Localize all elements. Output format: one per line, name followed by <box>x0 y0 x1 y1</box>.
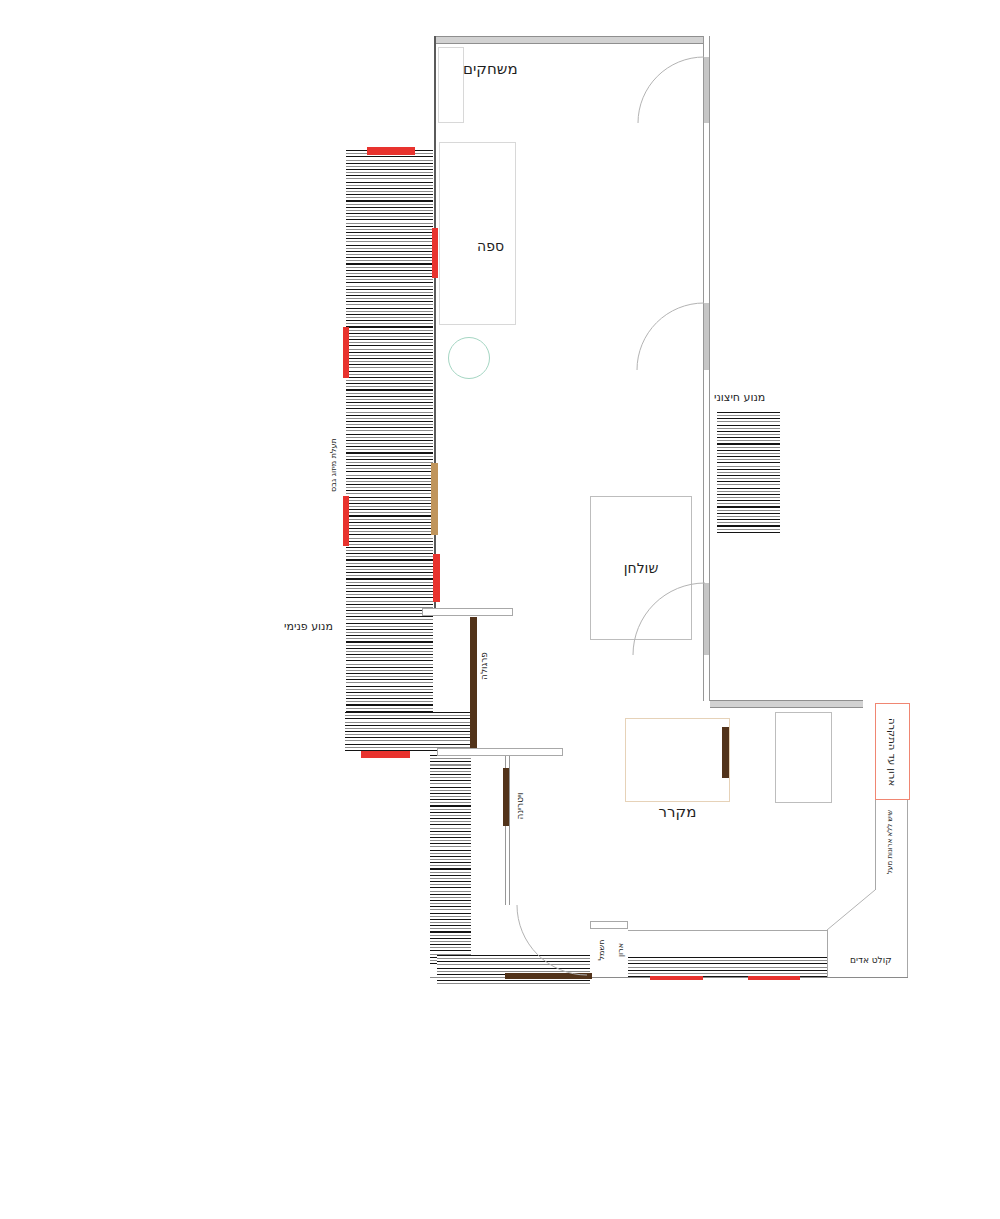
counter-side-line <box>827 930 828 977</box>
window-marker-right-1 <box>432 228 438 278</box>
top-wall <box>434 36 710 44</box>
games-shelf <box>438 47 464 123</box>
pantry-rect <box>775 712 832 803</box>
vitrine-label: ויטרינה <box>515 793 525 820</box>
door-leaf-middle <box>704 303 709 370</box>
electric-cabinet-label-word1: ארון <box>616 943 625 957</box>
corner-wall <box>710 700 863 708</box>
vitrine-bar <box>503 768 509 826</box>
fridge-label: מקרר <box>625 803 730 821</box>
electric-cabinet-box <box>590 921 628 929</box>
deck-hatch-bottom-right <box>628 957 827 977</box>
cabinet-inner-line <box>875 798 876 890</box>
entry-door-bar <box>505 973 592 979</box>
door-leaf-top <box>704 57 709 123</box>
window-marker-entry-1 <box>650 976 703 980</box>
deck-hatch-vertical <box>430 755 471 965</box>
opening-marker-lower <box>437 748 563 756</box>
ac-duct-label: תעלת מיזוג גבס <box>329 438 338 492</box>
table-rect: שולחן <box>590 496 692 640</box>
counter-no-cabinets-label: שיש ללא ארונות מעל <box>886 810 894 874</box>
opening-marker-upper <box>422 608 513 616</box>
window-marker-entry-2 <box>748 976 800 980</box>
deck-hatch-wide <box>345 712 473 753</box>
vapor-hood-label: קולט אדים <box>850 955 892 965</box>
window-marker-left-2 <box>343 496 349 546</box>
external-motor-hatch <box>717 412 780 535</box>
table-label: שולחן <box>624 560 659 576</box>
electric-cabinet-label-word2: חשמל <box>597 940 606 961</box>
fridge-rect <box>625 718 730 802</box>
floor-plan: שולחן משחקים ספה מקרר מנוע חיצוני מנוע פ… <box>0 0 1000 1219</box>
counter-top-line <box>628 930 827 931</box>
internal-motor-label: מנוע פנימי <box>284 620 333 633</box>
games-label: משחקים <box>463 60 518 78</box>
sofa-rect <box>439 142 516 325</box>
pergola-label: פרגולה <box>479 652 489 680</box>
sofa-label: ספה <box>477 238 504 254</box>
plant-circle <box>448 337 490 379</box>
window-marker-left-1 <box>343 327 349 378</box>
window-marker-right-2 <box>433 554 440 602</box>
window-marker-deck-bottom <box>361 751 410 758</box>
external-motor-label: מנוע חיצוני <box>714 391 765 404</box>
deck-hatch-bottom-left <box>437 955 590 985</box>
pergola-bar <box>470 617 477 749</box>
window-marker-top <box>367 147 415 155</box>
door-leaf-lower <box>704 583 709 655</box>
closet-to-ceiling-label: ארון עד התקרה <box>887 718 898 786</box>
tan-bar <box>431 463 438 535</box>
deck-hatch-main <box>346 150 433 712</box>
